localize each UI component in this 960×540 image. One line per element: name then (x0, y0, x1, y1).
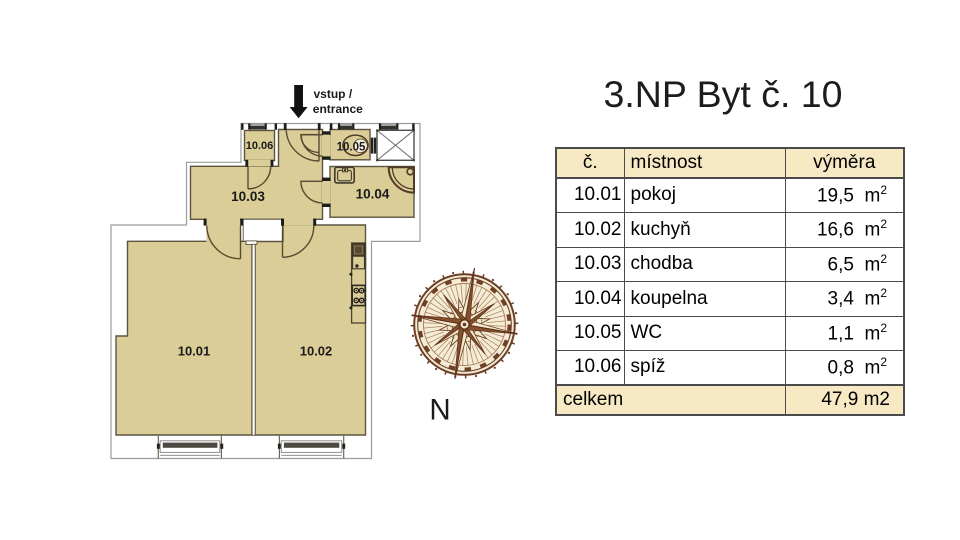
svg-text:vstup /: vstup / (314, 87, 353, 101)
svg-text:10.03: 10.03 (231, 189, 265, 204)
svg-text:10.01: 10.01 (178, 344, 211, 359)
svg-text:N: N (429, 394, 450, 427)
svg-text:entrance: entrance (313, 102, 363, 116)
svg-text:10.06: 10.06 (246, 140, 274, 152)
svg-text:10.05: 10.05 (337, 141, 366, 153)
svg-text:10.04: 10.04 (356, 187, 390, 202)
svg-text:10.02: 10.02 (300, 344, 333, 359)
